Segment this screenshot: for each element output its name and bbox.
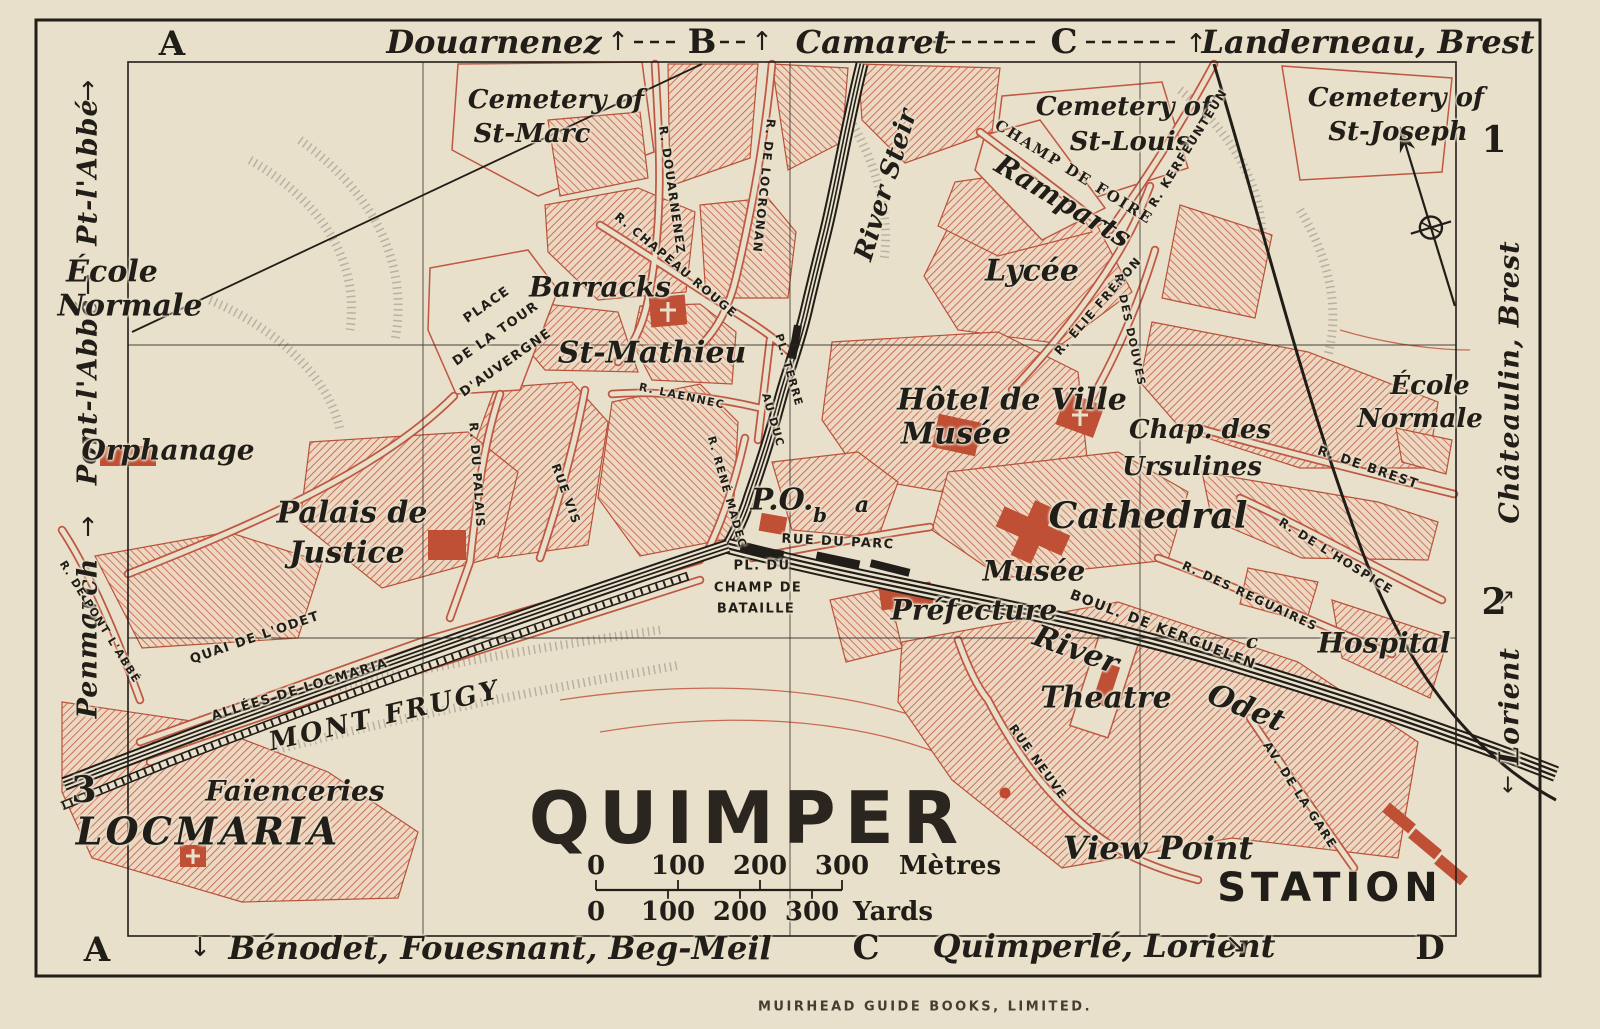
edge-lorient: Lorient bbox=[1495, 647, 1526, 765]
edge-pt-labbe: Pt-l'Abbé bbox=[73, 98, 104, 245]
ecole-normale-west-line2: Normale bbox=[58, 289, 203, 324]
grid-letter-d-bottom: D bbox=[1415, 928, 1444, 968]
street-pl-du-champ-line3: BATAILLE bbox=[717, 602, 795, 617]
grid-letter-c-top: C bbox=[1050, 22, 1077, 62]
hospital: Hospital bbox=[1318, 627, 1451, 660]
edge-camaret: Camaret bbox=[796, 23, 949, 61]
row-number-1: 1 bbox=[1481, 119, 1506, 161]
cemetery-st-marc-line1: Cemetery of bbox=[468, 85, 644, 115]
marker-b: b bbox=[813, 503, 827, 527]
scale-yards-unit: Yards bbox=[853, 897, 933, 927]
edge-chateaulin-brest: Châteaulin, Brest bbox=[1495, 240, 1526, 523]
locmaria: LOCMARIA bbox=[76, 809, 340, 854]
arrow-down-lorient: ↓ bbox=[1499, 774, 1517, 799]
st-mathieu: St-Mathieu bbox=[558, 336, 747, 371]
cemetery-st-joseph-line1: Cemetery of bbox=[1308, 83, 1484, 113]
palais-de-justice-line2: Justice bbox=[289, 536, 405, 571]
scale-yards-tick-300: 300 bbox=[785, 897, 839, 927]
theatre: Theatre bbox=[1040, 681, 1171, 716]
cemetery-st-louis-line1: Cemetery of bbox=[1036, 92, 1212, 122]
musee-hotel-de-ville: Musée bbox=[901, 417, 1011, 452]
station: STATION bbox=[1217, 865, 1443, 911]
edge-benodet: Bénodet, Fouesnant, Beg-Meil bbox=[228, 929, 771, 967]
row-number-2: 2 bbox=[1481, 581, 1506, 623]
map-title: QUIMPER bbox=[529, 776, 968, 860]
cemetery-st-joseph-line2: St-Joseph bbox=[1328, 117, 1467, 147]
barracks: Barracks bbox=[529, 271, 671, 304]
chap-des-ursulines-line2: Ursulines bbox=[1122, 452, 1262, 482]
lycee: Lycée bbox=[985, 254, 1079, 289]
arrow-up-camaret: ↑ bbox=[751, 27, 773, 57]
faiencieries: Faïenceries bbox=[205, 775, 384, 808]
arrow-se-quimperle: ↘ bbox=[1225, 929, 1247, 959]
arrow-up-penmarch: ↑ bbox=[77, 513, 99, 543]
cemetery-st-louis-line2: St-Louis bbox=[1070, 127, 1191, 157]
view-point-dot bbox=[1000, 788, 1011, 799]
grid-letter-a-top: A bbox=[159, 24, 185, 64]
map-canvas: ADouarnenez↑B↑CamaretC↑Landerneau, Brest… bbox=[0, 0, 1600, 1029]
ecole-normale-east-line2: Normale bbox=[1357, 404, 1483, 434]
cathedral: Cathedral bbox=[1049, 495, 1248, 537]
marker-a: a bbox=[855, 492, 869, 518]
orphanage: Orphanage bbox=[81, 434, 254, 467]
arrow-up-douarnenez: ↑ bbox=[607, 27, 629, 57]
edge-landerneau-brest: Landerneau, Brest bbox=[1201, 23, 1534, 61]
ecole-normale-west-line1: École bbox=[66, 255, 158, 290]
cemetery-st-marc-line2: St-Marc bbox=[474, 119, 591, 149]
arrow-down-benodet: ↓ bbox=[189, 933, 211, 963]
street-pl-du-champ-line1: PL. DU bbox=[733, 559, 790, 574]
chap-des-ursulines-line1: Chap. des bbox=[1129, 415, 1271, 445]
view-point: View Point bbox=[1063, 829, 1253, 867]
musee-south: Musée bbox=[983, 555, 1086, 588]
post-office: P.O. bbox=[751, 483, 814, 518]
grid-letter-a-bottom: A bbox=[84, 930, 110, 970]
edge-douarnenez: Douarnenez bbox=[386, 23, 601, 61]
scale-yards-tick-0: 0 bbox=[587, 897, 605, 927]
scale-yards-tick-200: 200 bbox=[713, 897, 767, 927]
marker-c: c bbox=[1246, 629, 1258, 653]
palais-de-justice-line1: Palais de bbox=[277, 496, 428, 531]
hotel-de-ville: Hôtel de Ville bbox=[897, 383, 1127, 418]
grid-letter-b-top: B bbox=[688, 22, 717, 62]
publisher-imprint: MUIRHEAD GUIDE BOOKS, LIMITED. bbox=[758, 1000, 1092, 1015]
ecole-normale-east-line1: École bbox=[1390, 371, 1469, 401]
street-pl-du-champ-line2: CHAMP DE bbox=[714, 581, 802, 596]
grid-letter-c-bottom: C bbox=[852, 928, 879, 968]
scale-yards-tick-100: 100 bbox=[641, 897, 695, 927]
row-number-3: 3 bbox=[71, 769, 96, 811]
edge-quimperle-lorient: Quimperlé, Lorient bbox=[933, 927, 1276, 965]
arrow-up-pt-labbe: ↑ bbox=[77, 77, 99, 107]
prefecture: Préfecture bbox=[891, 594, 1057, 627]
